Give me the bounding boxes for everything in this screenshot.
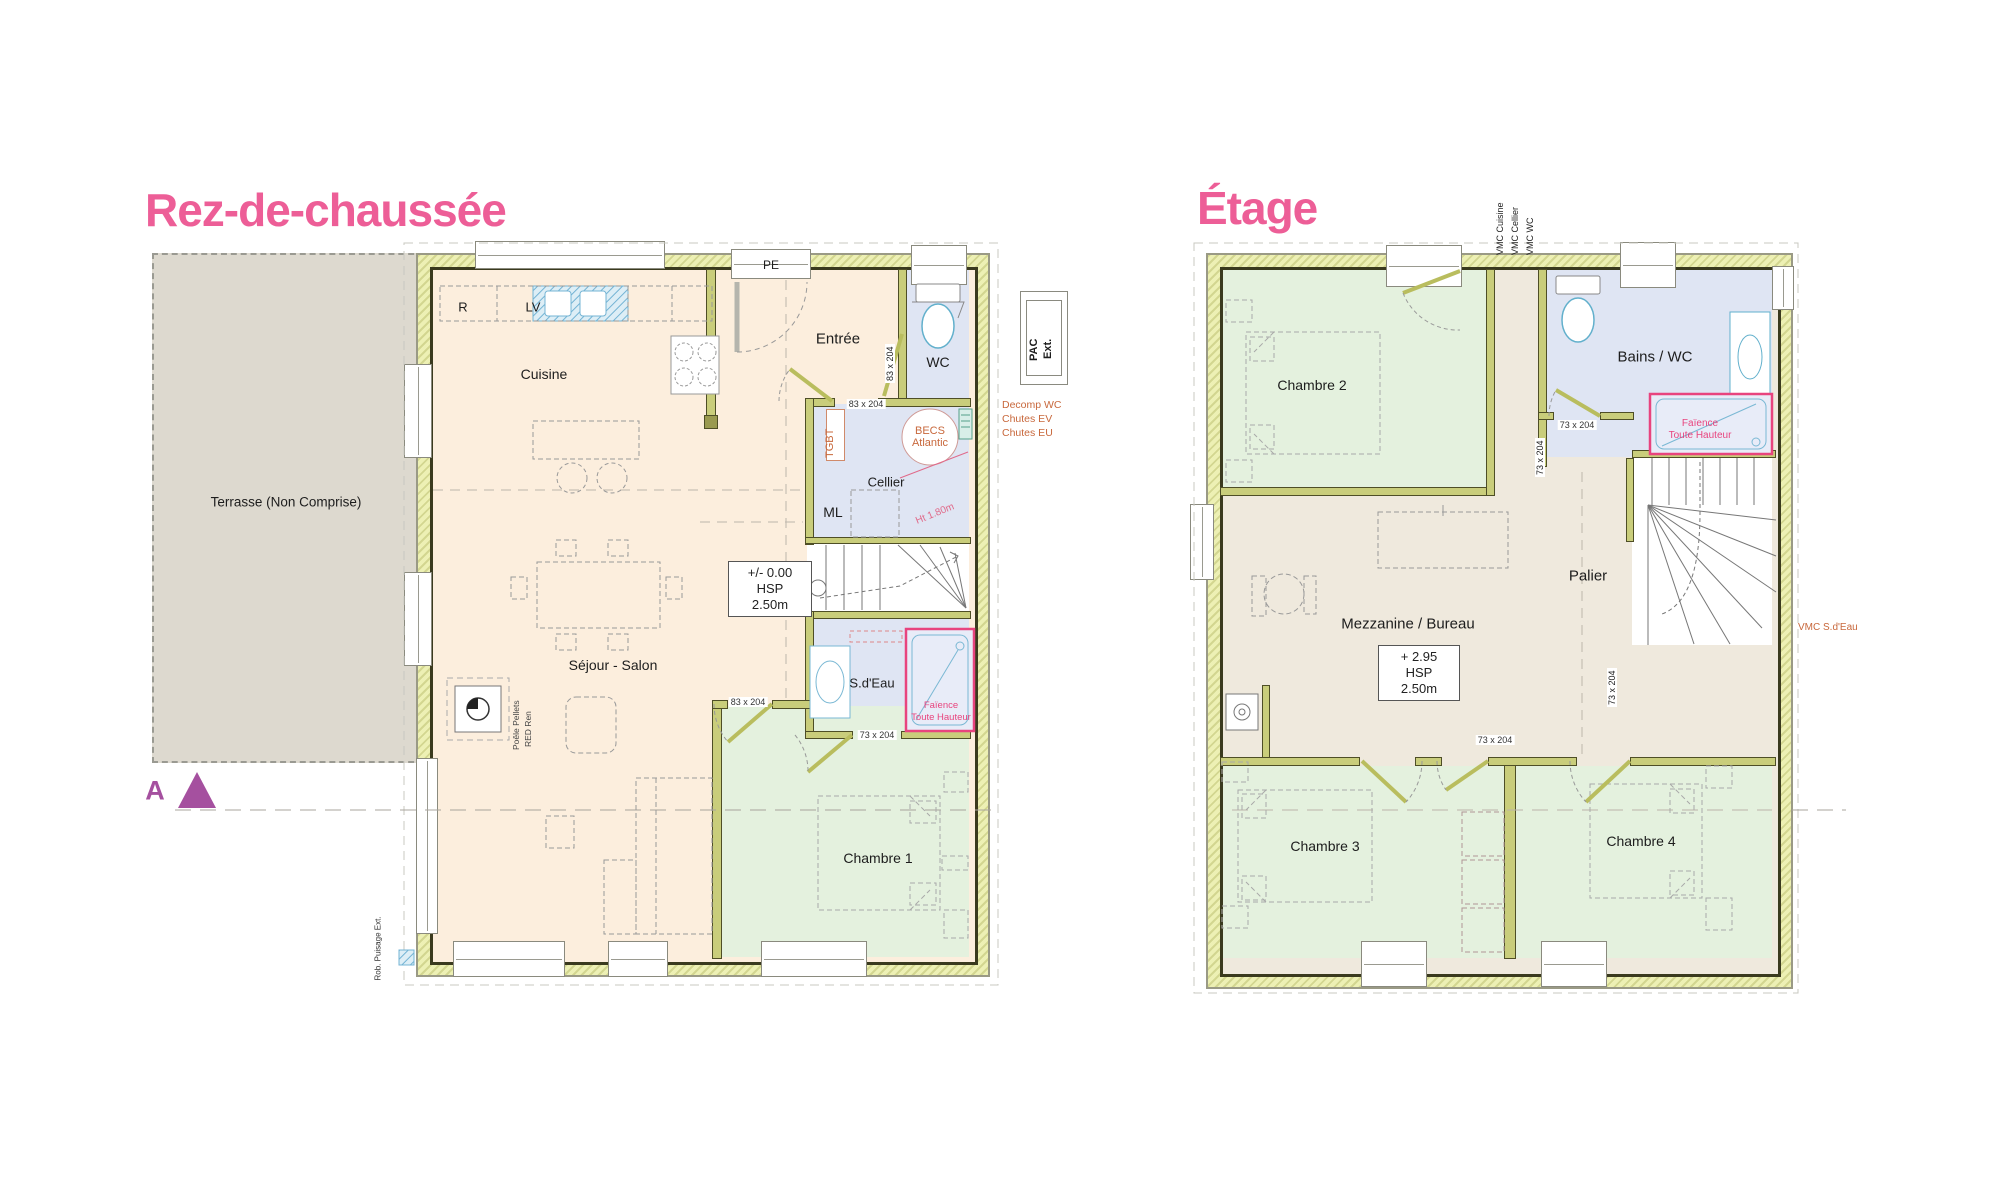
- room-label-chambre2: Chambre 2: [1277, 377, 1346, 393]
- wall: [1630, 757, 1776, 766]
- room-stairs-etage: [1632, 458, 1772, 645]
- wall: [712, 708, 722, 959]
- window: [1541, 941, 1607, 987]
- window: [608, 941, 668, 977]
- room-wc: [905, 270, 969, 400]
- room-label-chambre3: Chambre 3: [1290, 838, 1359, 854]
- door-dim: 73 x 204: [1607, 668, 1617, 707]
- title-etage: Étage: [1197, 181, 1317, 235]
- wall: [1262, 685, 1270, 759]
- wall: [1220, 487, 1492, 496]
- wall: [805, 611, 971, 619]
- wall: [1632, 450, 1776, 458]
- note-decomp-wc: Decomp WC: [1002, 398, 1062, 412]
- vmc-wc-note: VMC WC: [1525, 218, 1535, 256]
- level-value: + 2.95: [1387, 649, 1451, 665]
- section-letter: A: [145, 776, 165, 807]
- vmc-sdeau-note: VMC S.d'Eau: [1798, 622, 1858, 633]
- wall: [805, 537, 971, 544]
- door-dim: 73 x 204: [1476, 735, 1515, 745]
- room-label-entree: Entrée: [816, 331, 860, 348]
- wall: [1504, 765, 1516, 959]
- room-chambre4: [1516, 766, 1772, 958]
- door-dim: 83 x 204: [729, 697, 768, 707]
- heat-pump-label: PAC: [1028, 339, 1040, 361]
- floor-plan-sheet: { "titles": {"rdc": "Rez-de-chaussée", "…: [0, 0, 2000, 1200]
- wall: [1600, 412, 1634, 420]
- room-label-wc: WC: [926, 354, 949, 370]
- room-label-mezzanine: Mezzanine / Bureau: [1341, 616, 1474, 633]
- room-label-chambre1: Chambre 1: [843, 850, 912, 866]
- washer-label: ML: [823, 504, 842, 520]
- tiling-line2: Toute Hauteur: [1669, 430, 1732, 442]
- plumbing-notes: Decomp WC Chutes EV Chutes EU: [1002, 398, 1062, 440]
- tiling-note-etage: Faïence Toute Hauteur: [1669, 418, 1732, 442]
- door-dim: 73 x 204: [858, 730, 897, 740]
- window: [761, 941, 867, 977]
- tiling-line1: Faïence: [911, 700, 971, 712]
- wall: [805, 731, 853, 739]
- tiling-line1: Faïence: [1669, 418, 1732, 430]
- wall: [878, 398, 971, 407]
- stove-label-line2: RED Ren: [523, 711, 533, 747]
- window: [1772, 266, 1794, 310]
- stove-model-label: RED Ren: [523, 711, 533, 747]
- vmc-cuisine-note: VMC Cuisine: [1495, 202, 1505, 255]
- window: [1190, 504, 1214, 580]
- window: [453, 941, 565, 977]
- becs-line2: Atlantic: [912, 437, 948, 449]
- tiling-line2: Toute Hauteur: [911, 712, 971, 724]
- window: [475, 241, 665, 269]
- wall: [898, 269, 907, 401]
- wall: [704, 415, 718, 429]
- room-chambre3: [1223, 766, 1504, 958]
- exterior-tap-label: Rob. Puisage Ext.: [374, 916, 383, 980]
- room-label-sejour: Séjour - Salon: [569, 657, 658, 673]
- wall: [706, 269, 716, 417]
- wall: [805, 398, 814, 545]
- wall: [1488, 757, 1577, 766]
- level-box-etage: + 2.95 HSP 2.50m: [1378, 645, 1460, 701]
- ceiling-height: HSP 2.50m: [1387, 665, 1451, 697]
- window: [1361, 941, 1427, 987]
- terrace-label: Terrasse (Non Comprise): [211, 495, 362, 510]
- window: [404, 364, 432, 458]
- room-label-palier: Palier: [1569, 568, 1607, 585]
- door-dim: 83 x 204: [847, 399, 886, 409]
- door-dim: 83 x 204: [885, 344, 895, 383]
- window: [404, 572, 432, 666]
- wall: [901, 731, 971, 739]
- bay-window: [416, 758, 438, 934]
- becs-line1: BECS: [912, 425, 948, 437]
- tgbt-label: TGBT: [824, 429, 836, 458]
- wall: [712, 700, 728, 709]
- note-chutes-ev: Chutes EV: [1002, 412, 1062, 426]
- exterior-tap: [399, 950, 414, 965]
- door-dim: 73 x 204: [1558, 420, 1597, 430]
- room-label-cuisine: Cuisine: [521, 366, 568, 382]
- window: [911, 245, 967, 285]
- window: [1386, 245, 1462, 287]
- room-chambre2: [1223, 270, 1489, 489]
- room-label-chambre4: Chambre 4: [1606, 833, 1675, 849]
- dishwasher-label: LV: [526, 300, 541, 315]
- wall: [1486, 269, 1495, 496]
- room-label-cellier: Cellier: [868, 475, 905, 490]
- wall: [805, 611, 814, 738]
- title-rdc: Rez-de-chaussée: [145, 183, 506, 237]
- wall: [1626, 458, 1634, 542]
- wall: [772, 700, 814, 709]
- level-value: +/- 0.00: [737, 565, 803, 581]
- ceiling-height: HSP 2.50m: [737, 581, 803, 613]
- tiling-note-rdc: Faïence Toute Hauteur: [911, 700, 971, 724]
- wall: [1538, 269, 1547, 467]
- vmc-cellier-note: VMC Cellier: [1510, 207, 1520, 255]
- heat-pump-label2: Ext.: [1042, 339, 1054, 359]
- fridge-label: R: [458, 300, 467, 315]
- section-marker-triangle: [178, 772, 216, 808]
- entry-door-label: PE: [763, 258, 779, 272]
- room-stairs-rdc: [807, 543, 969, 612]
- becs-label: BECS Atlantic: [912, 425, 948, 449]
- door-dim: 73 x 204: [1535, 438, 1545, 477]
- level-box-rdc: +/- 0.00 HSP 2.50m: [728, 561, 812, 617]
- room-chambre1: [720, 706, 969, 957]
- wall: [1220, 757, 1360, 766]
- window: [1620, 242, 1676, 288]
- room-label-bains: Bains / WC: [1617, 349, 1692, 366]
- stove-label: Poêle Pellets: [511, 700, 521, 750]
- wall: [1538, 412, 1554, 420]
- stove-label-line1: Poêle Pellets: [511, 700, 521, 750]
- room-label-sdeau: S.d'Eau: [849, 676, 894, 691]
- note-chutes-eu: Chutes EU: [1002, 426, 1062, 440]
- wall: [1415, 757, 1442, 766]
